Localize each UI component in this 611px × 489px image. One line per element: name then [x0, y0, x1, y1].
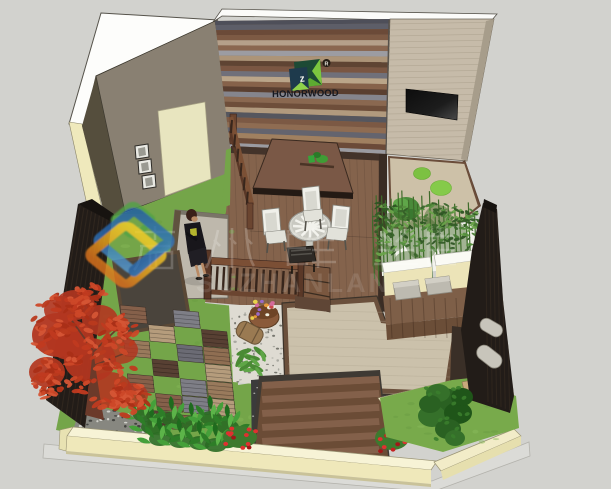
svg-text:HONORWOOD: HONORWOOD [272, 87, 339, 99]
svg-text:R: R [325, 62, 329, 68]
svg-text:SUZHANLAN: SUZHANLAN [196, 268, 391, 298]
